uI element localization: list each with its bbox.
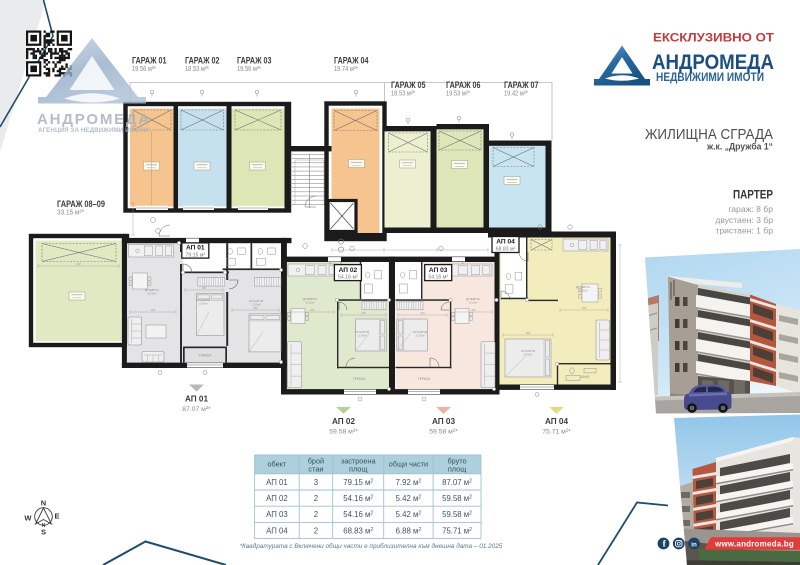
svg-text:АП 03: АП 03 — [432, 417, 456, 426]
svg-text:АНДРОМЕДА: АНДРОМЕДА — [652, 50, 774, 74]
svg-text:87.07 м2: 87.07 м2 — [442, 478, 472, 487]
svg-text:54.16 м²: 54.16 м² — [428, 275, 448, 281]
svg-text:75.71 м2: 75.71 м2 — [442, 526, 472, 535]
svg-text:площ: площ — [448, 465, 466, 474]
svg-text:350: 350 — [151, 308, 156, 312]
svg-text:ТЕРАСА: ТЕРАСА — [418, 377, 431, 381]
svg-text:площ: площ — [349, 465, 367, 474]
svg-text:26.30м²: 26.30м² — [578, 289, 587, 293]
svg-text:305: 305 — [310, 308, 315, 312]
svg-text:двустаен: 3 бр: двустаен: 3 бр — [715, 215, 773, 225]
svg-text:АП 01: АП 01 — [185, 395, 209, 404]
svg-text:13.60м²: 13.60м² — [251, 303, 260, 307]
svg-text:320: 320 — [420, 311, 425, 315]
svg-text:АП 03: АП 03 — [429, 267, 448, 274]
svg-text:23.20м²: 23.20м² — [468, 301, 477, 305]
svg-text:59.58 м²*: 59.58 м²* — [329, 428, 358, 435]
svg-text:2: 2 — [314, 494, 318, 503]
svg-text:12.80м²: 12.80м² — [198, 302, 207, 306]
svg-text:АП 01: АП 01 — [186, 245, 205, 252]
svg-text:2: 2 — [314, 510, 318, 519]
svg-text:тристаен: 1 бр: тристаен: 1 бр — [715, 226, 773, 236]
svg-text:54.16 м2: 54.16 м2 — [343, 494, 373, 503]
svg-text:S: S — [41, 528, 46, 537]
svg-text:стаи: стаи — [308, 465, 323, 474]
svg-text:2: 2 — [314, 526, 318, 535]
svg-text:АП 02: АП 02 — [332, 417, 356, 426]
svg-text:АГЕНЦИЯ ЗА НЕДВИЖИМИ ИМОТИ: АГЕНЦИЯ ЗА НЕДВИЖИМИ ИМОТИ — [38, 127, 149, 134]
svg-text:33.15 м²*: 33.15 м²* — [57, 208, 84, 217]
svg-text:ДНЕВНА: ДНЕВНА — [466, 297, 481, 301]
svg-text:ДНЕВНА: ДНЕВНА — [145, 288, 160, 292]
svg-text:59.58 м²*: 59.58 м²* — [429, 428, 458, 435]
svg-text:АП 04: АП 04 — [496, 239, 515, 246]
svg-text:18.53 м²*: 18.53 м²* — [185, 64, 209, 73]
svg-text:19.74 м²*: 19.74 м²* — [334, 64, 358, 73]
svg-text:СПАЛНЯ: СПАЛНЯ — [196, 298, 210, 302]
svg-text:НЕДВИЖИМИ ИМОТИ: НЕДВИЖИМИ ИМОТИ — [656, 72, 764, 84]
svg-text:СПАЛНЯ: СПАЛНЯ — [413, 330, 427, 334]
svg-text:СПАЛНЯ: СПАЛНЯ — [355, 330, 369, 334]
svg-text:W: W — [24, 514, 32, 523]
svg-text:18.53 м²*: 18.53 м²* — [391, 89, 415, 98]
svg-text:25.30м²: 25.30м² — [147, 292, 156, 296]
svg-text:ЖИЛИЩНА СГРАДА: ЖИЛИЩНА СГРАДА — [645, 126, 773, 143]
svg-text:320: 320 — [361, 311, 366, 315]
svg-text:АП 04: АП 04 — [266, 526, 288, 535]
svg-text:in: in — [691, 541, 697, 548]
svg-text:79.15 м²: 79.15 м² — [185, 252, 205, 258]
svg-text:ПАРТЕР: ПАРТЕР — [733, 188, 773, 202]
svg-text:5.42 м2: 5.42 м2 — [396, 510, 422, 519]
svg-text:640: 640 — [76, 262, 81, 266]
svg-text:общи части: общи части — [389, 460, 428, 469]
svg-text:12.00м²: 12.00м² — [415, 334, 424, 338]
svg-text:12.00м²: 12.00м² — [357, 334, 366, 338]
svg-text:СПАЛНЯ: СПАЛНЯ — [521, 349, 535, 353]
svg-text:305: 305 — [471, 308, 476, 312]
svg-text:59.58 м2: 59.58 м2 — [442, 494, 472, 503]
svg-text:N: N — [41, 499, 46, 508]
svg-text:280: 280 — [202, 286, 207, 290]
svg-text:14.60м²: 14.60м² — [523, 353, 532, 357]
svg-text:ТЕРАСА: ТЕРАСА — [199, 354, 212, 358]
svg-text:гараж: 8 бр: гараж: 8 бр — [728, 204, 773, 214]
svg-text:АП 01: АП 01 — [266, 478, 288, 487]
svg-text:АП 02: АП 02 — [266, 494, 288, 503]
svg-text:ДНЕВНА: ДНЕВНА — [303, 297, 318, 301]
svg-text:68.83 м²: 68.83 м² — [496, 247, 516, 253]
svg-text:СПАЛНЯ: СПАЛНЯ — [249, 299, 263, 303]
svg-text:54.16 м²: 54.16 м² — [338, 275, 358, 281]
svg-text:БАНЯ: БАНЯ — [581, 375, 590, 379]
svg-text:E: E — [55, 512, 60, 521]
svg-text:19.56 м²*: 19.56 м²* — [132, 64, 156, 73]
svg-text:АП 02: АП 02 — [339, 267, 358, 274]
svg-text:обект: обект — [267, 460, 286, 469]
svg-text:87.07 м²*: 87.07 м²* — [182, 406, 211, 413]
svg-text:ЕКСКЛУЗИВНО ОТ: ЕКСКЛУЗИВНО ОТ — [653, 31, 775, 45]
svg-text:3: 3 — [314, 478, 318, 487]
svg-text:23.20м²: 23.20м² — [305, 301, 314, 305]
svg-text:ТЕРАСА: ТЕРАСА — [353, 377, 366, 381]
svg-text:ДНЕВНА: ДНЕВНА — [576, 285, 591, 289]
svg-text:19.53 м²*: 19.53 м²* — [446, 89, 470, 98]
svg-text:68.83 м2: 68.83 м2 — [343, 526, 373, 535]
svg-text:*Квадратурата с Включени общи: *Квадратурата с Включени общи части е пр… — [240, 542, 503, 550]
svg-text:5.42 м2: 5.42 м2 — [396, 494, 422, 503]
svg-text:75.71 м²*: 75.71 м²* — [542, 428, 571, 435]
svg-text:www.andromeda.bg: www.andromeda.bg — [714, 539, 794, 548]
svg-text:59.58 м2: 59.58 м2 — [442, 510, 472, 519]
svg-text:7.92 м2: 7.92 м2 — [396, 478, 422, 487]
svg-text:19.42 м²*: 19.42 м²* — [504, 89, 528, 98]
svg-text:19.56 м²*: 19.56 м²* — [237, 64, 261, 73]
svg-text:ж.к. „Дружба 1“: ж.к. „Дружба 1“ — [706, 142, 773, 153]
svg-text:54.16 м2: 54.16 м2 — [343, 510, 373, 519]
svg-text:АНДРОМЕДА: АНДРОМЕДА — [37, 111, 151, 128]
svg-text:79.15 м2: 79.15 м2 — [343, 478, 373, 487]
svg-text:АП 03: АП 03 — [266, 510, 288, 519]
svg-text:АП 04: АП 04 — [545, 417, 569, 426]
svg-text:6.88 м2: 6.88 м2 — [396, 526, 422, 535]
svg-text:350: 350 — [526, 331, 531, 335]
svg-text:330: 330 — [582, 306, 587, 310]
